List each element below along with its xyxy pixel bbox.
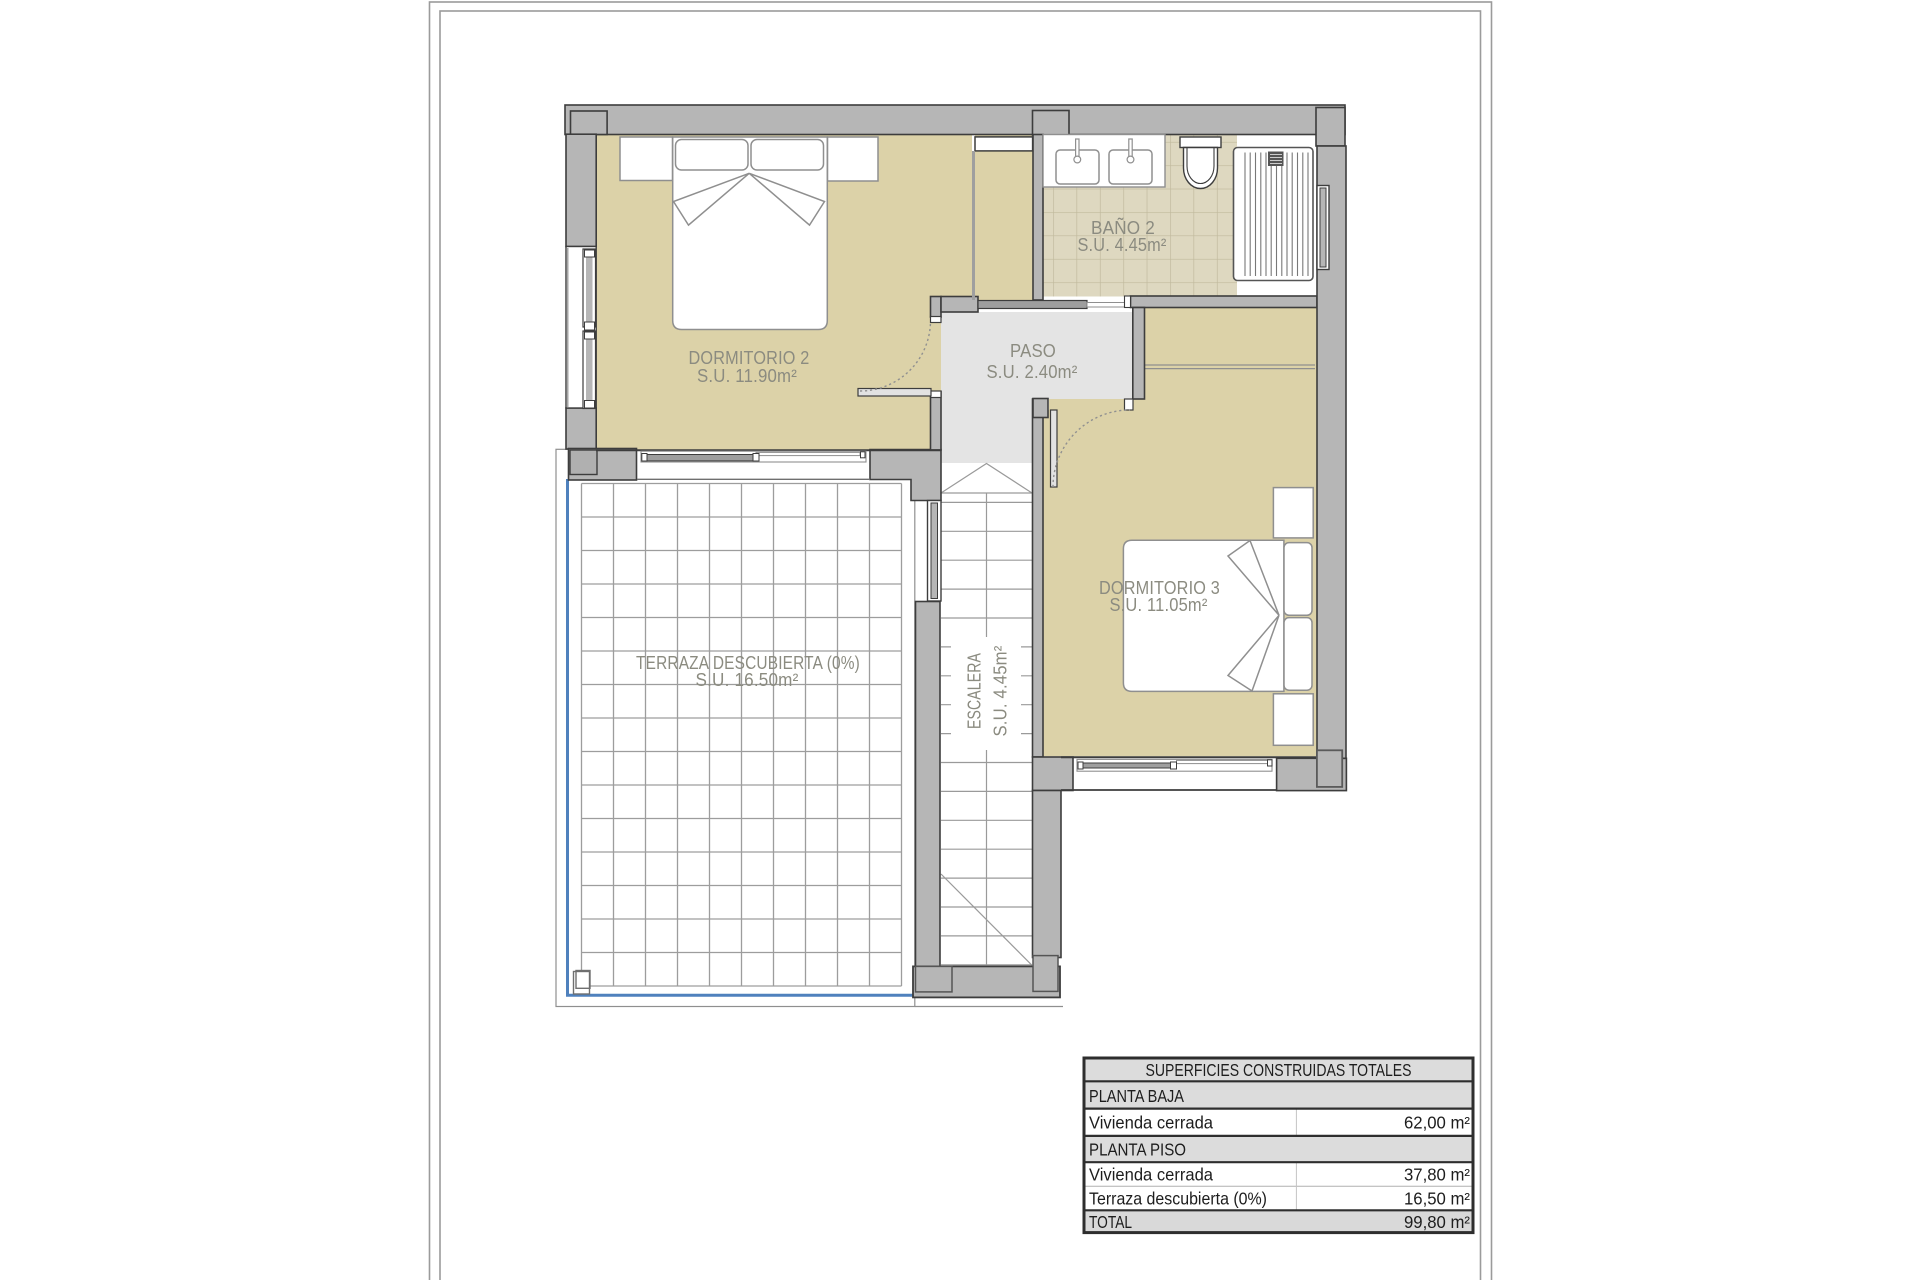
svg-text:S.U. 2.40m²: S.U. 2.40m² bbox=[987, 362, 1078, 382]
svg-text:TOTAL: TOTAL bbox=[1089, 1212, 1132, 1232]
svg-text:S.U. 16.50m²: S.U. 16.50m² bbox=[696, 670, 799, 690]
svg-text:99,80 m²: 99,80 m² bbox=[1404, 1212, 1470, 1232]
svg-text:16,50 m²: 16,50 m² bbox=[1404, 1189, 1470, 1209]
svg-text:ESCALERA: ESCALERA bbox=[965, 653, 985, 729]
svg-text:Vivienda cerrada: Vivienda cerrada bbox=[1089, 1164, 1213, 1184]
svg-text:PLANTA BAJA: PLANTA BAJA bbox=[1089, 1086, 1184, 1106]
svg-text:PLANTA PISO: PLANTA PISO bbox=[1089, 1140, 1186, 1160]
svg-text:Vivienda cerrada: Vivienda cerrada bbox=[1089, 1113, 1213, 1133]
svg-text:S.U. 11.90m²: S.U. 11.90m² bbox=[697, 366, 797, 386]
svg-text:SUPERFICIES CONSTRUIDAS TOTALE: SUPERFICIES CONSTRUIDAS TOTALES bbox=[1146, 1060, 1412, 1080]
svg-text:S.U. 11.05m²: S.U. 11.05m² bbox=[1110, 595, 1208, 615]
svg-text:Terraza descubierta (0%): Terraza descubierta (0%) bbox=[1089, 1189, 1267, 1209]
svg-text:62,00 m²: 62,00 m² bbox=[1404, 1113, 1470, 1133]
svg-text:S.U. 4.45m²: S.U. 4.45m² bbox=[991, 646, 1011, 737]
svg-text:DORMITORIO 2: DORMITORIO 2 bbox=[689, 348, 810, 368]
svg-text:S.U. 4.45m²: S.U. 4.45m² bbox=[1078, 235, 1167, 255]
svg-text:37,80 m²: 37,80 m² bbox=[1404, 1164, 1470, 1184]
svg-text:PASO: PASO bbox=[1010, 341, 1056, 361]
